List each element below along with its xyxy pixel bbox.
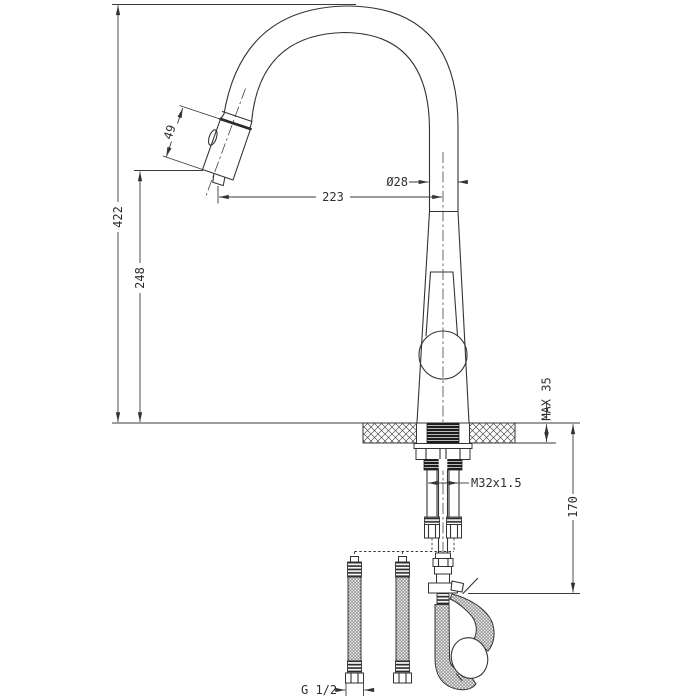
mounting-hardware bbox=[414, 423, 472, 471]
dim-max-deck-thickness: MAX 35 bbox=[540, 377, 554, 442]
dim-248-label: 248 bbox=[133, 267, 147, 289]
spray-head bbox=[203, 112, 253, 186]
hose-nipple bbox=[437, 593, 449, 605]
spout bbox=[205, 6, 458, 212]
hose-weight-loop bbox=[435, 594, 494, 690]
shank-threads-upper bbox=[427, 423, 459, 443]
spray-button bbox=[207, 129, 219, 146]
dim-overall-height: 422 bbox=[111, 5, 125, 422]
mounting-nut bbox=[416, 449, 470, 460]
dim-49-label: 49 bbox=[161, 123, 179, 141]
dim-spout-diameter: Ø28 bbox=[386, 175, 468, 189]
dim-under-deck-length: 170 bbox=[566, 424, 580, 592]
supply-hose-2 bbox=[394, 557, 412, 684]
dim-max35-label: MAX 35 bbox=[540, 377, 554, 420]
dim-d28-label: Ø28 bbox=[386, 175, 408, 189]
dim-m32-label: M32x1.5 bbox=[471, 476, 522, 490]
side-outlet bbox=[451, 581, 464, 592]
hose-end-nut bbox=[346, 673, 364, 683]
hose-end-nut bbox=[394, 673, 412, 683]
dim-mounting-thread: M32x1.5 bbox=[428, 476, 522, 490]
washer bbox=[414, 444, 472, 449]
dim-g12-label: G 1/2 bbox=[301, 683, 337, 697]
dim-422-label: 422 bbox=[111, 206, 125, 228]
supply-tube-nut-left bbox=[425, 517, 440, 538]
drawing-canvas: 422 248 223 49 Ø28 MAX 35 170 M32x1.5 bbox=[0, 0, 700, 700]
dim-spray-head-length: 49 bbox=[161, 108, 183, 157]
dim-223-label: 223 bbox=[322, 190, 344, 204]
extension-lines bbox=[112, 5, 580, 697]
dim-170-label: 170 bbox=[566, 496, 580, 518]
dim-spout-reach: 223 bbox=[219, 190, 442, 204]
dim-aerator-height: 248 bbox=[133, 172, 147, 423]
supply-hose-1 bbox=[346, 557, 364, 684]
faucet-technical-drawing: 422 248 223 49 Ø28 MAX 35 170 M32x1.5 bbox=[0, 0, 700, 700]
counter-section-right bbox=[470, 423, 516, 443]
counter-section-left bbox=[363, 423, 417, 443]
supply-tube-nut-right bbox=[447, 517, 462, 538]
